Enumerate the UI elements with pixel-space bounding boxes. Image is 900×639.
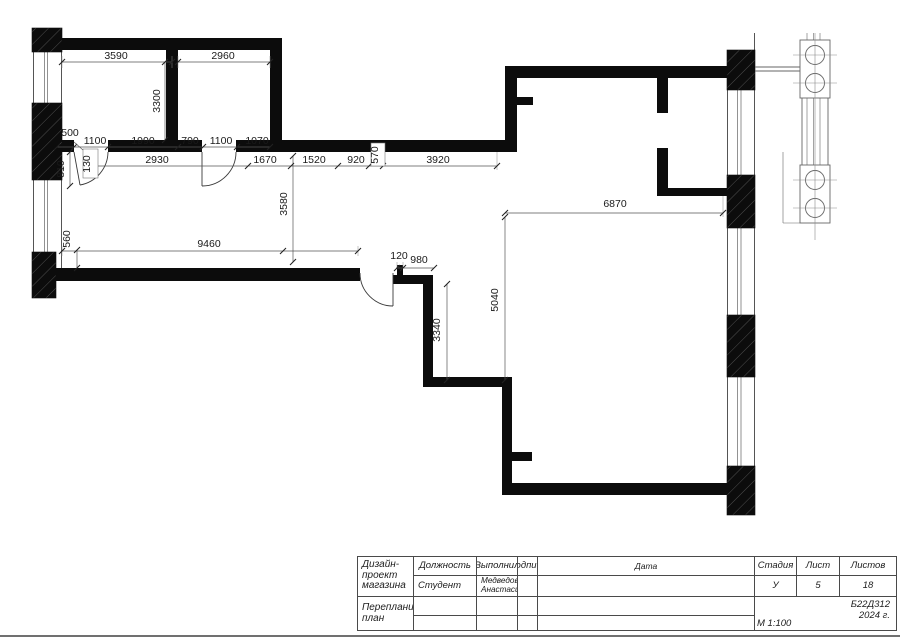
floor-plan-drawing: 3590 2960 3300 500 1100 1990 790 1100 10… — [0, 0, 900, 556]
titleblock-col-executed: Выполнил — [477, 557, 518, 576]
titleblock-empty — [518, 616, 538, 630]
dimension-label: 920 — [347, 154, 365, 166]
dimension-label: 810 — [55, 160, 67, 178]
column-riser-detail — [755, 33, 837, 240]
titleblock-empty — [538, 597, 755, 616]
door-arc — [202, 152, 236, 186]
author-line2: Анастасия — [481, 585, 518, 594]
dimension-label: 2960 — [211, 50, 235, 62]
dimension-label: 3340 — [431, 318, 443, 342]
titleblock-role: Студент — [414, 576, 477, 597]
titleblock-scale-cell: Б22Д312 2024 г. М 1:100 — [755, 597, 896, 630]
titleblock-col-sheet: Лист — [797, 557, 840, 576]
dimension-label: 9460 — [197, 238, 221, 250]
dimension-label: 1100 — [210, 135, 233, 147]
dimension-label: 980 — [410, 254, 428, 266]
titleblock-empty — [414, 616, 477, 630]
dimension-label: 6870 — [603, 198, 627, 210]
window-band-right — [728, 33, 755, 515]
door-arc — [360, 273, 393, 306]
dimension-label: 3590 — [104, 50, 128, 62]
dimension-label: 2930 — [145, 154, 169, 166]
titleblock-col-stage: Стадия — [755, 557, 797, 576]
dimension-label: 790 — [181, 135, 199, 147]
titleblock-empty — [477, 616, 518, 630]
titleblock-col-position: Должность — [414, 557, 477, 576]
walls — [34, 38, 733, 495]
title-block: Должность Выполнил Подпись Дата Дизайн-п… — [357, 556, 897, 631]
dimension-label: 500 — [61, 127, 79, 139]
floor-plan-sheet: 3590 2960 3300 500 1100 1990 790 1100 10… — [0, 0, 900, 639]
titleblock-empty — [477, 597, 518, 616]
titleblock-date-cell — [538, 576, 755, 597]
dimension-label: 3580 — [278, 192, 290, 216]
sheet-border-bottom — [0, 635, 900, 637]
dimension-label: 3920 — [426, 154, 450, 166]
titleblock-empty — [538, 616, 755, 630]
titleblock-col-date: Дата — [538, 557, 755, 576]
titleblock-sheets-value: 18 — [840, 576, 896, 597]
titleblock-drawing-title: Перепланировочный план — [358, 597, 414, 630]
dimension-label: 570 — [369, 146, 381, 164]
titleblock-empty — [518, 597, 538, 616]
dimension-label: 120 — [390, 250, 408, 262]
titleblock-empty — [414, 597, 477, 616]
titleblock-scale: М 1:100 — [757, 619, 791, 629]
dimension-label: 3300 — [151, 89, 163, 113]
dimension-label: 130 — [81, 155, 93, 173]
dimension-label: 1070 — [245, 135, 269, 147]
dimension-label: 1100 — [84, 135, 107, 147]
titleblock-year: 2024 г. — [859, 610, 890, 621]
door-swings — [74, 152, 393, 306]
titleblock-col-sheets: Листов — [840, 557, 896, 576]
dimension-label: 1990 — [131, 135, 155, 147]
dimension-label: 5040 — [489, 288, 501, 312]
titleblock-sheet-value: 5 — [797, 576, 840, 597]
titleblock-author: Медведовская Анастасия — [477, 576, 518, 597]
titleblock-project-name: Дизайн-проект магазина — [358, 557, 414, 597]
titleblock-stage-value: У — [755, 576, 797, 597]
titleblock-code: Б22Д312 — [851, 599, 890, 610]
dimension-labels: 3590 2960 3300 500 1100 1990 790 1100 10… — [55, 50, 627, 342]
titleblock-col-signature: Подпись — [518, 557, 538, 576]
dimension-label: 1670 — [253, 154, 277, 166]
titleblock-signature-cell — [518, 576, 538, 597]
dimension-label: 560 — [61, 230, 73, 248]
dimension-label: 1520 — [302, 154, 326, 166]
